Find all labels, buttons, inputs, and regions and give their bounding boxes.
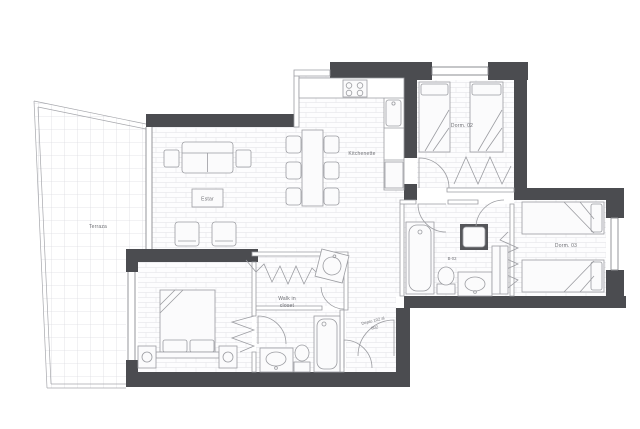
window-master-bedroom — [128, 272, 135, 360]
shower-tray-inner — [463, 227, 485, 247]
window-bedroom3 — [611, 218, 618, 270]
pillow — [591, 204, 602, 232]
window-living-room — [146, 127, 152, 249]
pillow — [472, 84, 501, 95]
toilet-tank — [294, 362, 310, 372]
dining-chair — [324, 162, 339, 179]
dining-table — [302, 130, 323, 206]
terrace-label: Terraza — [89, 224, 107, 230]
dining-chair — [286, 136, 301, 153]
armchair-right — [212, 222, 236, 246]
nightstand-right — [219, 346, 237, 368]
toilet-bowl — [295, 345, 309, 361]
armchair-left — [175, 222, 199, 246]
bedroom3-label: Dorm. 03 — [555, 243, 577, 249]
walk-in-closet-label-line2: closet — [280, 303, 295, 309]
walk-in-closet-label-line1: Walk in — [278, 296, 296, 302]
kitchenette-label: Kitchenette — [348, 151, 375, 157]
bathtub — [314, 316, 340, 372]
living-room-label: Estar — [201, 197, 214, 203]
dining-chair — [286, 162, 301, 179]
dining-chair — [286, 188, 301, 205]
refrigerator — [385, 162, 403, 188]
pillow — [591, 262, 602, 290]
headboard — [156, 352, 219, 358]
vanity — [260, 348, 293, 372]
vanity — [458, 272, 492, 296]
bedroom2-label: Dorm. 02 — [451, 123, 473, 129]
pillow — [421, 84, 448, 95]
side-table-left — [164, 150, 179, 167]
dining-chair — [324, 136, 339, 153]
pillow — [190, 340, 214, 352]
pillow — [163, 340, 187, 352]
floor-plan-canvas: Terraza Estar — [0, 0, 640, 429]
terrace-floor-tiles — [34, 101, 146, 388]
terrace: Terraza — [34, 101, 146, 388]
kitchen-sink — [386, 100, 401, 126]
nightstand-left — [138, 346, 156, 368]
bathroom2-label: B-02 — [448, 256, 458, 261]
toilet-tank — [437, 284, 455, 294]
bathtub — [406, 222, 434, 294]
side-table-right — [236, 150, 251, 167]
toilet-bowl — [438, 267, 454, 285]
window-bedroom2 — [432, 67, 488, 75]
dining-chair — [324, 188, 339, 205]
